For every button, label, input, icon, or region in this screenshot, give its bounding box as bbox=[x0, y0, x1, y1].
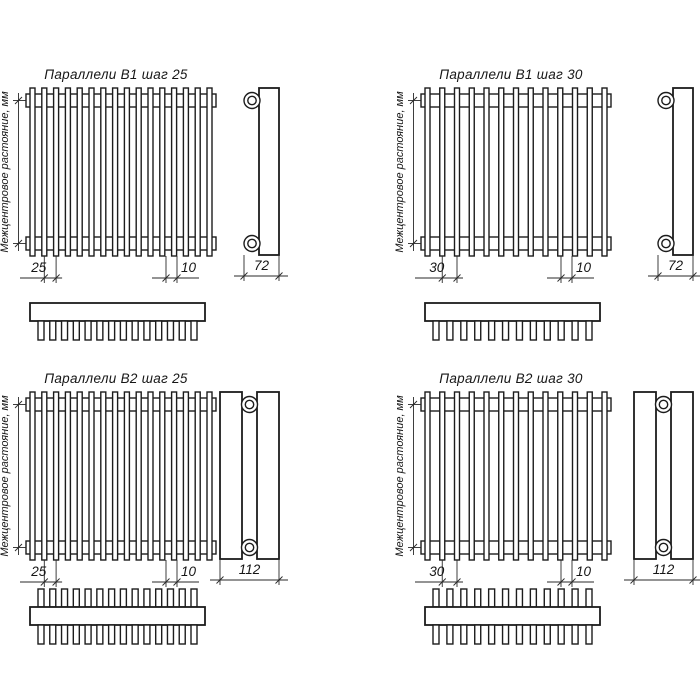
tube bbox=[136, 392, 141, 560]
tube-top-view bbox=[38, 589, 44, 607]
tube-top-view bbox=[558, 321, 564, 340]
tube bbox=[469, 88, 474, 256]
diagram-parallels-b2-step25: Параллели В2 шаг 25Межцентровое растояни… bbox=[0, 371, 288, 644]
side-column-rear bbox=[671, 392, 693, 559]
tube-top-view bbox=[109, 625, 115, 644]
tube bbox=[573, 392, 578, 560]
collector-top-view bbox=[425, 303, 600, 321]
tube-top-view bbox=[62, 625, 68, 644]
end-value: 10 bbox=[181, 564, 197, 579]
top-view bbox=[30, 303, 205, 340]
pipe-fitting-inner bbox=[245, 543, 253, 551]
tube-top-view bbox=[50, 321, 56, 340]
front-view bbox=[421, 392, 611, 560]
tube bbox=[514, 392, 519, 560]
step-dimension: 30 bbox=[415, 256, 463, 283]
tube-top-view bbox=[572, 625, 578, 644]
tube-top-view bbox=[516, 625, 522, 644]
tube-top-view bbox=[433, 589, 439, 607]
pipe-fitting-inner bbox=[248, 96, 256, 104]
diagram-title: Параллели В2 шаг 25 bbox=[44, 371, 188, 386]
tube bbox=[160, 392, 165, 560]
tube-top-view bbox=[179, 589, 185, 607]
tube-top-view bbox=[572, 589, 578, 607]
pipe-fitting-inner bbox=[662, 239, 670, 247]
tube bbox=[558, 392, 563, 560]
tube bbox=[573, 88, 578, 256]
tube bbox=[124, 392, 129, 560]
tube bbox=[499, 88, 504, 256]
depth-value: 72 bbox=[254, 258, 270, 273]
diagram-title: Параллели В2 шаг 30 bbox=[439, 371, 583, 386]
tube bbox=[89, 392, 94, 560]
tube-top-view bbox=[38, 625, 44, 644]
tube bbox=[484, 88, 489, 256]
tube-top-view bbox=[447, 589, 453, 607]
tube bbox=[54, 88, 59, 256]
tube-top-view bbox=[475, 589, 481, 607]
pipe-fitting-inner bbox=[659, 543, 667, 551]
intercenter-dimension: Межцентровое растояние, мм bbox=[394, 91, 421, 253]
tube-top-view bbox=[120, 589, 126, 607]
depth-dimension: 112 bbox=[210, 559, 288, 585]
side-view bbox=[658, 88, 693, 255]
depth-dimension: 72 bbox=[234, 255, 288, 281]
tube bbox=[30, 392, 35, 560]
tube-top-view bbox=[120, 625, 126, 644]
tube bbox=[425, 392, 430, 560]
tube-top-view bbox=[132, 589, 138, 607]
tube-top-view bbox=[447, 321, 453, 340]
step-value: 25 bbox=[30, 260, 47, 275]
tube bbox=[528, 392, 533, 560]
end-dimension: 10 bbox=[547, 560, 594, 587]
tube-top-view bbox=[167, 589, 173, 607]
side-view bbox=[244, 88, 279, 255]
intercenter-label: Межцентровое растояние, мм bbox=[394, 91, 406, 253]
tube-top-view bbox=[85, 625, 91, 644]
tube bbox=[469, 392, 474, 560]
tube-top-view bbox=[544, 625, 550, 644]
tube-top-view bbox=[97, 589, 103, 607]
end-value: 10 bbox=[181, 260, 197, 275]
tube-top-view bbox=[447, 625, 453, 644]
intercenter-label: Межцентровое растояние, мм bbox=[394, 395, 406, 557]
diagram-title: Параллели В1 шаг 25 bbox=[44, 67, 188, 82]
tube bbox=[207, 88, 212, 256]
tube-top-view bbox=[85, 589, 91, 607]
step-dimension: 30 bbox=[415, 560, 463, 587]
tube-top-view bbox=[489, 589, 495, 607]
tube-top-view bbox=[62, 589, 68, 607]
technical-drawing-sheet: Параллели В1 шаг 25Межцентровое растояни… bbox=[0, 0, 700, 700]
tube-top-view bbox=[475, 625, 481, 644]
tube bbox=[77, 392, 82, 560]
tube-top-view bbox=[544, 321, 550, 340]
tube bbox=[54, 392, 59, 560]
tube-top-view bbox=[572, 321, 578, 340]
side-column bbox=[673, 88, 693, 255]
tube-top-view bbox=[489, 321, 495, 340]
tube bbox=[148, 392, 153, 560]
tube bbox=[183, 88, 188, 256]
end-value: 10 bbox=[576, 260, 592, 275]
step-dimension: 25 bbox=[20, 256, 62, 283]
tube bbox=[207, 392, 212, 560]
tube bbox=[148, 88, 153, 256]
intercenter-label: Межцентровое растояние, мм bbox=[0, 395, 11, 557]
depth-value: 112 bbox=[239, 562, 261, 577]
step-value: 25 bbox=[30, 564, 47, 579]
tube-top-view bbox=[191, 589, 197, 607]
intercenter-dimension: Межцентровое растояние, мм bbox=[0, 91, 26, 253]
tube-top-view bbox=[461, 625, 467, 644]
depth-dimension: 72 bbox=[648, 255, 700, 281]
side-column-front bbox=[220, 392, 242, 559]
diagram-parallels-b2-step30: Параллели В2 шаг 30Межцентровое растояни… bbox=[394, 371, 700, 644]
tube bbox=[499, 392, 504, 560]
tube-top-view bbox=[516, 589, 522, 607]
tube bbox=[172, 88, 177, 256]
tube bbox=[101, 88, 106, 256]
tube-top-view bbox=[489, 625, 495, 644]
side-column-rear bbox=[257, 392, 279, 559]
tube bbox=[455, 392, 460, 560]
tube-top-view bbox=[530, 625, 536, 644]
tube bbox=[183, 392, 188, 560]
tube-top-view bbox=[530, 589, 536, 607]
tube bbox=[124, 88, 129, 256]
tube-top-view bbox=[50, 589, 56, 607]
intercenter-dimension: Межцентровое растояние, мм bbox=[0, 395, 26, 557]
tube bbox=[77, 88, 82, 256]
tube-top-view bbox=[461, 321, 467, 340]
tube-top-view bbox=[167, 321, 173, 340]
tube-top-view bbox=[503, 625, 509, 644]
end-dimension: 10 bbox=[152, 256, 199, 283]
diagram-title: Параллели В1 шаг 30 bbox=[439, 67, 583, 82]
tube-top-view bbox=[97, 625, 103, 644]
end-dimension: 10 bbox=[152, 560, 199, 587]
pipe-fitting-inner bbox=[245, 400, 253, 408]
tube bbox=[440, 392, 445, 560]
tube bbox=[587, 88, 592, 256]
tube bbox=[172, 392, 177, 560]
front-view bbox=[26, 88, 216, 256]
tube-top-view bbox=[109, 321, 115, 340]
intercenter-dimension: Межцентровое растояние, мм bbox=[394, 395, 421, 557]
tube-top-view bbox=[167, 625, 173, 644]
tube-top-view bbox=[73, 321, 79, 340]
step-value: 30 bbox=[429, 260, 445, 275]
tube-top-view bbox=[85, 321, 91, 340]
tube-top-view bbox=[73, 589, 79, 607]
tube-top-view bbox=[73, 625, 79, 644]
tube-top-view bbox=[144, 625, 150, 644]
tube-top-view bbox=[179, 625, 185, 644]
tube bbox=[558, 88, 563, 256]
step-value: 30 bbox=[429, 564, 445, 579]
front-view bbox=[26, 392, 216, 560]
top-view bbox=[30, 589, 205, 644]
tube-top-view bbox=[586, 321, 592, 340]
tube-top-view bbox=[191, 625, 197, 644]
tube bbox=[195, 392, 200, 560]
top-view bbox=[425, 303, 600, 340]
top-view bbox=[425, 589, 600, 644]
tube-top-view bbox=[516, 321, 522, 340]
tube-top-view bbox=[558, 589, 564, 607]
tube bbox=[587, 392, 592, 560]
tube bbox=[602, 392, 607, 560]
tube bbox=[42, 88, 47, 256]
tube-top-view bbox=[179, 321, 185, 340]
tube-top-view bbox=[503, 321, 509, 340]
tube-top-view bbox=[144, 589, 150, 607]
tube bbox=[113, 88, 118, 256]
tube bbox=[455, 88, 460, 256]
tube-top-view bbox=[530, 321, 536, 340]
side-view bbox=[220, 392, 279, 559]
side-column bbox=[259, 88, 279, 255]
depth-value: 112 bbox=[653, 562, 675, 577]
diagram-parallels-b1-step30: Параллели В1 шаг 30Межцентровое растояни… bbox=[394, 67, 700, 340]
diagram-parallels-b1-step25: Параллели В1 шаг 25Межцентровое растояни… bbox=[0, 67, 288, 340]
tube bbox=[65, 88, 70, 256]
tube-top-view bbox=[586, 625, 592, 644]
tube-top-view bbox=[156, 625, 162, 644]
front-view bbox=[421, 88, 611, 256]
collector-top-view bbox=[30, 607, 205, 625]
tube bbox=[514, 88, 519, 256]
tube-top-view bbox=[586, 589, 592, 607]
tube-top-view bbox=[156, 321, 162, 340]
tube bbox=[160, 88, 165, 256]
tube bbox=[113, 392, 118, 560]
tube bbox=[42, 392, 47, 560]
tube bbox=[484, 392, 489, 560]
tube-top-view bbox=[62, 321, 68, 340]
tube-top-view bbox=[475, 321, 481, 340]
tube-top-view bbox=[120, 321, 126, 340]
tube bbox=[30, 88, 35, 256]
tube bbox=[101, 392, 106, 560]
tube-top-view bbox=[503, 589, 509, 607]
intercenter-label: Межцентровое растояние, мм bbox=[0, 91, 11, 253]
tube bbox=[528, 88, 533, 256]
pipe-fitting-inner bbox=[659, 400, 667, 408]
tube bbox=[65, 392, 70, 560]
tube bbox=[543, 88, 548, 256]
end-value: 10 bbox=[576, 564, 592, 579]
tube bbox=[195, 88, 200, 256]
tube-top-view bbox=[132, 321, 138, 340]
radiator-drawing-canvas: Параллели В1 шаг 25Межцентровое растояни… bbox=[0, 0, 700, 700]
tube bbox=[440, 88, 445, 256]
depth-dimension: 112 bbox=[624, 559, 700, 585]
tube-top-view bbox=[461, 589, 467, 607]
end-dimension: 10 bbox=[547, 256, 594, 283]
tube-top-view bbox=[156, 589, 162, 607]
tube-top-view bbox=[433, 321, 439, 340]
pipe-fitting-inner bbox=[248, 239, 256, 247]
collector-top-view bbox=[30, 303, 205, 321]
pipe-fitting-inner bbox=[662, 96, 670, 104]
tube bbox=[425, 88, 430, 256]
step-dimension: 25 bbox=[20, 560, 62, 587]
tube-top-view bbox=[97, 321, 103, 340]
side-view bbox=[634, 392, 693, 559]
side-column-front bbox=[634, 392, 656, 559]
tube-top-view bbox=[132, 625, 138, 644]
tube-top-view bbox=[50, 625, 56, 644]
tube-top-view bbox=[38, 321, 44, 340]
tube-top-view bbox=[558, 625, 564, 644]
tube-top-view bbox=[109, 589, 115, 607]
tube bbox=[89, 88, 94, 256]
collector-top-view bbox=[425, 607, 600, 625]
tube-top-view bbox=[191, 321, 197, 340]
tube-top-view bbox=[433, 625, 439, 644]
tube bbox=[543, 392, 548, 560]
tube bbox=[136, 88, 141, 256]
tube bbox=[602, 88, 607, 256]
tube-top-view bbox=[544, 589, 550, 607]
tube-top-view bbox=[144, 321, 150, 340]
depth-value: 72 bbox=[668, 258, 684, 273]
